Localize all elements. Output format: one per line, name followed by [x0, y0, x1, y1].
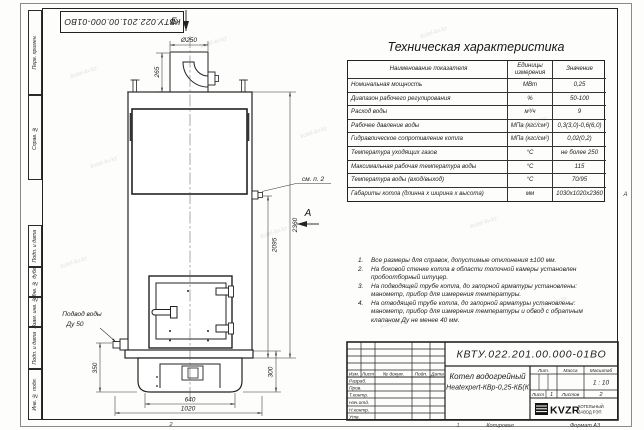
- water-inlet-pipe: [113, 342, 120, 349]
- spec-cell-value: 1030х1020х2360: [553, 188, 606, 202]
- ash-drawer-handle: [188, 368, 198, 378]
- spec-cell-units: мм: [508, 188, 553, 202]
- spec-cell-units: МПа (кгс/см²): [508, 133, 553, 147]
- upper-panel-hinge-left: [130, 113, 133, 141]
- upper-panel-hinge-right: [247, 113, 250, 141]
- spec-cell-name: Рабочее давление воды: [348, 120, 508, 134]
- tb-col-list: Лист: [361, 371, 374, 377]
- dim-2095: 2095: [272, 237, 279, 253]
- tb-row-prov: Пров.: [349, 385, 362, 391]
- dim-265: 265: [154, 66, 161, 78]
- lifting-lug-right: [242, 80, 246, 92]
- tb-row-razrab: Разраб.: [349, 378, 366, 384]
- door-handle-mount: [171, 307, 178, 319]
- bottom-plate: [125, 350, 253, 358]
- tb-row-nkontr: Н.контр.: [349, 407, 369, 413]
- spec-table-title: Техническая характеристика: [347, 40, 605, 54]
- flue-elbow-cap: [208, 72, 215, 85]
- view-b-label: Б: [171, 16, 177, 27]
- spec-cell-units: м³/ч: [508, 106, 553, 120]
- spec-cell-value: 0,3(3,0)-0,6(6,0): [553, 120, 606, 134]
- see-note-callout: см. п. 2: [302, 176, 325, 183]
- spec-header-value: Значение: [553, 61, 606, 79]
- spec-cell-name: Габариты котла (длинна х ширина х высота…: [348, 188, 508, 202]
- lifting-lug-left: [133, 80, 137, 92]
- spec-cell-value: 70/95: [553, 174, 606, 188]
- spec-cell-value: 0,02(0,2): [553, 133, 606, 147]
- note-text: На подводящей трубе котла, до запорной а…: [371, 283, 610, 300]
- dim-2360: 2360: [292, 217, 299, 233]
- tb-col-dokum: № докум.: [383, 371, 404, 377]
- spec-cell-value: 9: [553, 106, 606, 120]
- door-hinge-top-pin: [229, 286, 234, 297]
- tb-row-tkontr: Т.контр.: [349, 392, 368, 398]
- spec-cell-name: Максимальная рабочая температура воды: [348, 161, 508, 175]
- spec-cell-units: МПа (кгс/см²): [508, 120, 553, 134]
- zone-letter-right: А: [622, 192, 627, 198]
- tb-sheets-value: 2: [598, 392, 602, 398]
- spec-cell-value: не более 250: [553, 147, 606, 161]
- note-item: 3. На подводящей трубе котла, до запорно…: [358, 283, 610, 300]
- note-number: 4.: [358, 300, 371, 325]
- spec-cell-name: Номинальная мощность: [348, 79, 508, 93]
- sampling-fitting-tip: [258, 193, 263, 198]
- format-label: Формат А3: [570, 423, 601, 429]
- note-number: 1.: [358, 257, 371, 265]
- tb-col-izm: Изм.: [349, 371, 359, 377]
- spec-header-units: Единицы измерения: [508, 61, 553, 79]
- flue-elbow-nub: [215, 76, 219, 82]
- tb-sheet-value: 1: [550, 392, 553, 398]
- tb-sheet-label: Лист: [531, 392, 544, 398]
- tb-doc-number: КВТУ.022.201.00.000-01ВО: [456, 349, 606, 361]
- tb-lit-label: Лит.: [537, 368, 549, 374]
- tb-product-name-1: Котел водогрейный: [449, 372, 526, 381]
- spec-cell-name: Диапазон рабочего регулирования: [348, 93, 508, 107]
- dim-640: 640: [185, 397, 196, 404]
- sampling-fitting: [252, 191, 258, 199]
- tb-row-utv: Утв.: [349, 414, 360, 420]
- tb-col-data: Дата: [430, 371, 444, 377]
- drawing-sheet: kotel-kv.kz kotel-kv.kz kotel-kv.kz kote…: [0, 0, 644, 430]
- company-line-1: КОТЕЛЬНЫЙ: [578, 404, 604, 409]
- spec-cell-value: 50-100: [553, 93, 606, 107]
- spec-table: Наименование показателя Единицы измерени…: [347, 60, 605, 202]
- copied-label: Копировал: [486, 423, 513, 429]
- water-inlet-label-1: Подвод воды: [62, 310, 102, 318]
- upper-panel: [132, 109, 247, 194]
- tb-row-nachotd: Нач.отд.: [349, 400, 369, 406]
- note-text: На отводящей трубе котла, до запорной ар…: [371, 300, 610, 325]
- note-text: На боковой стенке котла в области топочн…: [371, 266, 610, 283]
- dim-300: 300: [268, 366, 275, 377]
- note-number: 3.: [358, 283, 371, 300]
- note-number: 2.: [358, 266, 371, 283]
- tb-scale-value: 1 : 10: [593, 380, 610, 387]
- kvzr-logo-text: KVZR: [550, 405, 580, 417]
- spec-cell-value: 115: [553, 161, 606, 175]
- dim-1020: 1020: [181, 406, 196, 413]
- dim-chimney-dia: Ø250: [180, 37, 197, 44]
- copy-col-number: 1: [457, 423, 460, 429]
- spec-cell-units: °С: [508, 161, 553, 175]
- spec-cell-name: Гидравлическое сопротивление котла: [348, 133, 508, 147]
- tb-product-name-2: Heatexpert-КВр-0,25-КБ(К: [446, 385, 530, 392]
- tb-mass-label: Масса: [563, 368, 578, 374]
- spec-cell-value: 0,25: [553, 79, 606, 93]
- spec-cell-name: Температура уходящих газов: [348, 147, 508, 161]
- door-handle: [152, 310, 173, 316]
- spec-cell-units: °С: [508, 174, 553, 188]
- boiler-front-view: [113, 36, 263, 398]
- spec-cell-name: Температура воды (вход/выход): [348, 174, 508, 188]
- tb-col-podp: Подп.: [415, 371, 428, 377]
- note-item: 4. На отводящей трубе котла, до запорной…: [358, 300, 610, 325]
- note-item: 2. На боковой стенке котла в области топ…: [358, 266, 610, 283]
- tb-scale-label: Масштаб: [590, 368, 613, 374]
- note-text: Все размеры для справок, допустимые откл…: [371, 257, 556, 265]
- spec-cell-units: %: [508, 93, 553, 107]
- spec-header-name: Наименование показателя: [348, 61, 508, 79]
- notes-list: 1. Все размеры для справок, допустимые о…: [358, 257, 610, 326]
- kvzr-logo: KVZR КОТЕЛЬНЫЙ ЗАВОД РЭП: [535, 403, 604, 417]
- water-inlet-label-2: Ду 50: [66, 321, 84, 328]
- spec-cell-units: МВт: [508, 79, 553, 93]
- spec-cell-name: Расход воды: [348, 106, 508, 120]
- dim-350: 350: [92, 362, 99, 373]
- spec-cell-units: °С: [508, 147, 553, 161]
- zone-number-bottom: 2: [168, 422, 172, 428]
- view-a-label: А: [304, 208, 312, 219]
- note-item: 1. Все размеры для справок, допустимые о…: [358, 257, 610, 265]
- door-hinge-bottom-pin: [229, 323, 234, 334]
- tb-sheets-label: Листов: [561, 392, 580, 398]
- company-line-2: ЗАВОД РЭП: [578, 410, 601, 415]
- water-inlet-flange: [120, 339, 128, 350]
